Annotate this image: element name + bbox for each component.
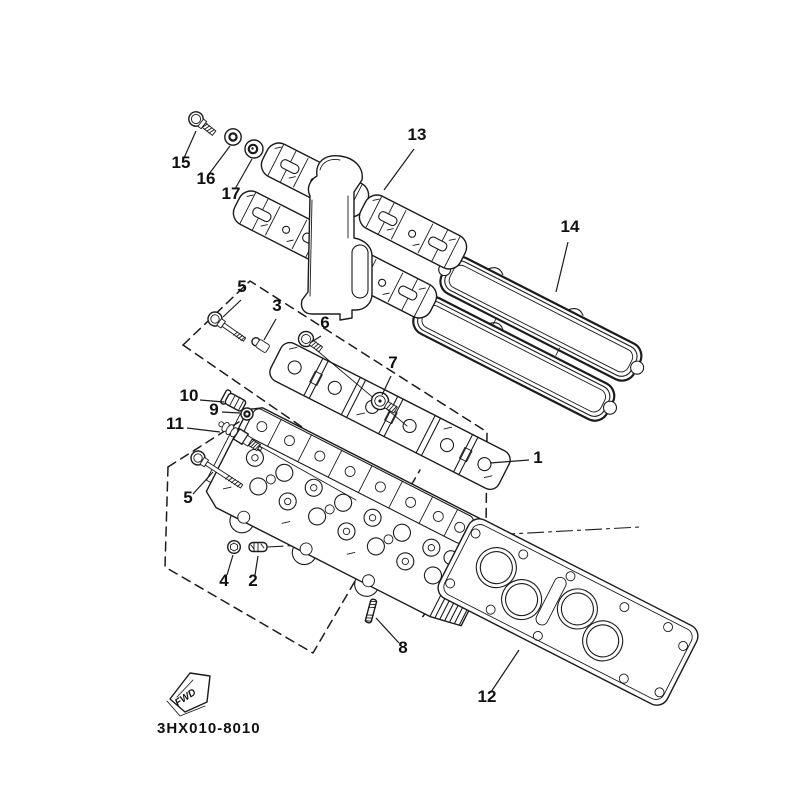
washer-16	[225, 129, 241, 145]
parts-diagram-canvas: 12345567891011121314151617 FWD 3HX010-80…	[0, 0, 800, 800]
part-callout-2: 2	[248, 571, 257, 590]
part-callout-14: 14	[561, 217, 580, 236]
bolt-15	[186, 109, 219, 139]
part-callout-15: 15	[172, 153, 191, 172]
nut-4	[228, 541, 241, 554]
part-callout-1: 1	[533, 448, 542, 467]
leader-line-part-3	[264, 319, 276, 340]
part-callout-5: 5	[237, 277, 246, 296]
part-callout-12: 12	[478, 687, 497, 706]
drawing-number: 3HX010-8010	[157, 720, 261, 737]
part-callout-5: 5	[183, 488, 192, 507]
stud-8	[365, 599, 378, 624]
part-callout-16: 16	[197, 169, 216, 188]
leader-line-part-13	[384, 149, 414, 190]
dowel-pin-2	[249, 543, 267, 552]
washer-9	[241, 408, 253, 420]
leader-line-part-14	[556, 242, 568, 292]
part-callout-4: 4	[219, 571, 229, 590]
grommet-17	[245, 140, 263, 158]
part-callout-7: 7	[388, 353, 397, 372]
leader-line-part-5	[223, 300, 241, 317]
cap-3	[250, 336, 270, 353]
leader-line-part-9	[222, 412, 240, 413]
part-callout-13: 13	[408, 125, 427, 144]
exploded-view-drawing: 12345567891011121314151617 FWD 3HX010-80…	[0, 0, 800, 800]
head-gasket	[434, 515, 702, 710]
part-callout-3: 3	[272, 296, 281, 315]
leader-line-part-11	[187, 428, 220, 432]
part-callout-17: 17	[222, 184, 241, 203]
leader-line-part-8	[376, 618, 399, 643]
bolt-5-upper	[205, 309, 248, 345]
part-callout-6: 6	[320, 313, 329, 332]
fwd-arrow: FWD	[167, 673, 210, 716]
part-callout-8: 8	[398, 638, 407, 657]
part-callout-11: 11	[166, 414, 184, 433]
valve-cover	[229, 139, 471, 323]
part-callout-9: 9	[209, 400, 218, 419]
leader-line-part-12	[491, 650, 519, 692]
part-callout-10: 10	[180, 386, 199, 405]
